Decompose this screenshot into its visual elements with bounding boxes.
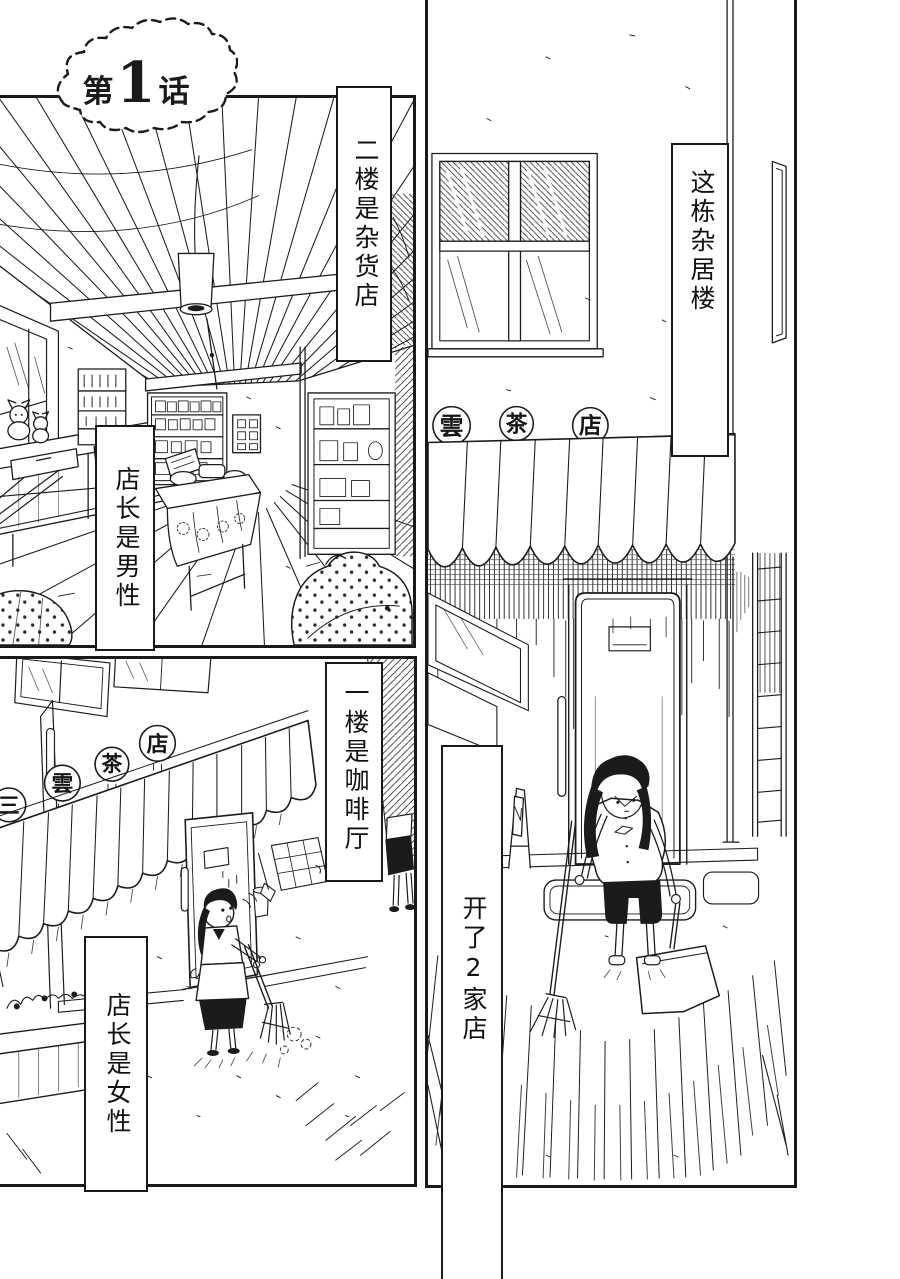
apron [196,963,248,1001]
broom-head [260,1002,290,1044]
partial-figure [385,814,414,912]
switch-panel [233,415,261,453]
chapter-suffix: 话 [158,66,189,111]
sign-char: 雲 [440,412,464,440]
broom [530,994,575,1038]
sign-char: 茶 [506,412,528,437]
caption-floor2-store: 二楼是杂货店 [336,86,392,362]
manga-page: 雲 茶 店 [0,0,900,1279]
right-shelf [308,393,395,554]
door-handle [181,867,188,911]
chapter-prefix: 第 [83,66,114,111]
caption-manager-female: 店长是女性 [84,936,148,1192]
sign-char: 店 [579,413,602,439]
skirt [199,998,247,1030]
caption-building: 这栋杂居楼 [671,143,729,457]
caption-manager-male: 店长是男性 [95,425,155,651]
sign-char: 茶 [102,752,123,776]
ladder [753,553,786,836]
polka-dot-pouf [292,552,412,645]
caption-floor1-cafe: 一楼是咖啡厅 [325,662,383,882]
chapter-number: 1 [117,58,156,108]
caption-two-shops: 开了2家店 [441,745,503,1279]
small-pouf [0,591,72,645]
chapter-bubble: 第 1 话 [34,12,238,148]
sign-char: 雲 [51,772,73,797]
side-window-sliver [772,161,786,342]
standing-sign [509,788,531,868]
upper-windows [15,659,211,717]
bucket-and-mat [254,838,328,917]
hanging-lamp [178,156,217,389]
sign-char: 店 [147,732,169,757]
display-table [155,449,260,610]
chapter-title: 第 1 话 [34,20,238,156]
second-floor-window [428,153,603,356]
door-handle [558,697,566,797]
